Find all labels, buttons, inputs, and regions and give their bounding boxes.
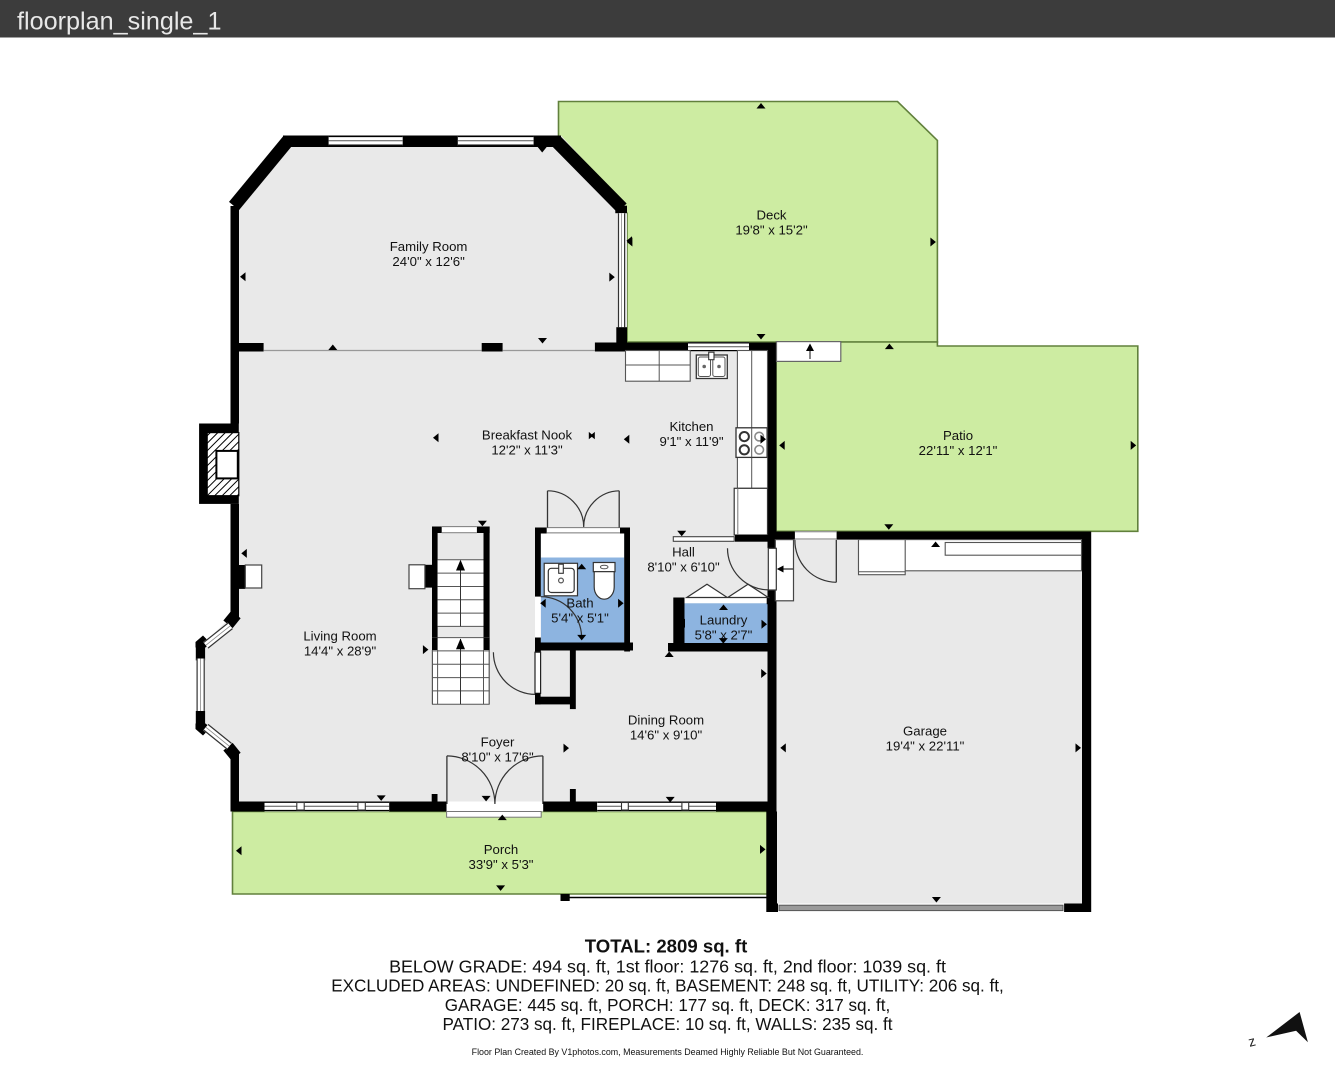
- svg-text:14'4" x 28'9": 14'4" x 28'9": [304, 644, 377, 659]
- svg-text:19'8" x 15'2": 19'8" x 15'2": [735, 223, 808, 238]
- svg-text:Kitchen: Kitchen: [670, 419, 714, 434]
- svg-text:Floor Plan Created By V1photos: Floor Plan Created By V1photos.com, Meas…: [472, 1047, 864, 1057]
- svg-text:33'9" x 5'3": 33'9" x 5'3": [469, 857, 534, 872]
- svg-text:EXCLUDED AREAS: UNDEFINED: 20: EXCLUDED AREAS: UNDEFINED: 20 sq. ft, BA…: [331, 977, 1004, 996]
- svg-text:19'4" x 22'11": 19'4" x 22'11": [886, 739, 965, 754]
- svg-text:Bath: Bath: [566, 596, 593, 611]
- svg-text:GARAGE: 445 sq. ft, PORCH: 177: GARAGE: 445 sq. ft, PORCH: 177 sq. ft, D…: [445, 996, 891, 1015]
- svg-text:Porch: Porch: [484, 842, 518, 857]
- svg-text:14'6" x 9'10": 14'6" x 9'10": [630, 728, 703, 743]
- svg-text:12'2" x 11'3": 12'2" x 11'3": [491, 443, 563, 458]
- svg-text:9'1" x 11'9": 9'1" x 11'9": [659, 434, 723, 449]
- svg-text:Patio: Patio: [943, 428, 973, 443]
- svg-text:Breakfast Nook: Breakfast Nook: [482, 428, 573, 443]
- svg-text:Family Room: Family Room: [390, 239, 468, 254]
- svg-text:BELOW GRADE: 494 sq. ft, 1st f: BELOW GRADE: 494 sq. ft, 1st floor: 1276…: [389, 957, 946, 977]
- svg-text:Foyer: Foyer: [481, 735, 515, 750]
- svg-text:8'10" x 6'10": 8'10" x 6'10": [647, 560, 720, 575]
- svg-text:PATIO: 273 sq. ft, FIREPLACE:: PATIO: 273 sq. ft, FIREPLACE: 10 sq. ft,…: [442, 1015, 892, 1034]
- svg-text:Living Room: Living Room: [303, 629, 376, 644]
- svg-text:Dining Room: Dining Room: [628, 713, 704, 728]
- svg-text:Laundry: Laundry: [700, 613, 748, 628]
- svg-text:22'11" x 12'1": 22'11" x 12'1": [919, 443, 998, 458]
- svg-text:Hall: Hall: [672, 545, 695, 560]
- svg-text:5'4" x 5'1": 5'4" x 5'1": [551, 611, 609, 626]
- svg-text:TOTAL: 2809 sq. ft: TOTAL: 2809 sq. ft: [585, 936, 748, 957]
- svg-text:Garage: Garage: [903, 724, 947, 739]
- svg-text:floorplan_single_1: floorplan_single_1: [17, 8, 221, 36]
- svg-text:8'10" x 17'6": 8'10" x 17'6": [461, 750, 534, 765]
- svg-text:24'0" x 12'6": 24'0" x 12'6": [392, 254, 465, 269]
- svg-text:Deck: Deck: [756, 208, 786, 223]
